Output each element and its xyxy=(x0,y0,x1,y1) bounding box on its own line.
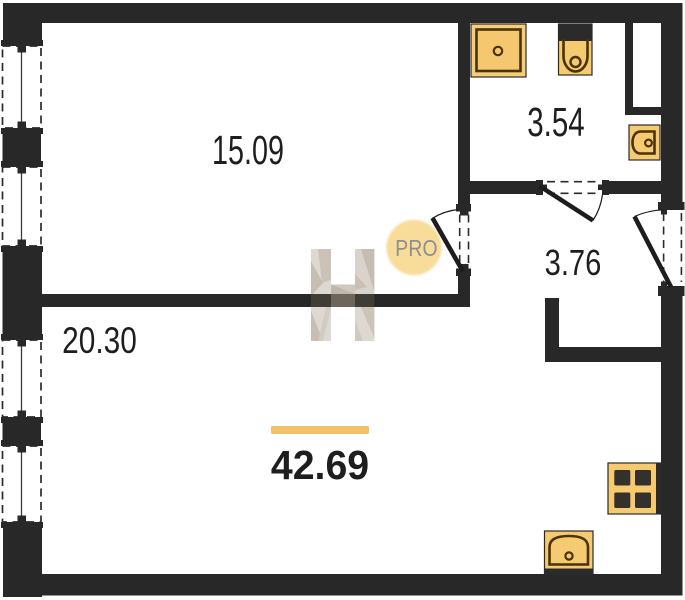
svg-text:42.69: 42.69 xyxy=(271,443,369,488)
svg-text:20.30: 20.30 xyxy=(62,320,137,362)
svg-text:3.76: 3.76 xyxy=(545,242,602,283)
svg-text:PRO: PRO xyxy=(395,237,437,262)
svg-text:15.09: 15.09 xyxy=(212,128,284,173)
svg-text:3.54: 3.54 xyxy=(527,99,584,145)
